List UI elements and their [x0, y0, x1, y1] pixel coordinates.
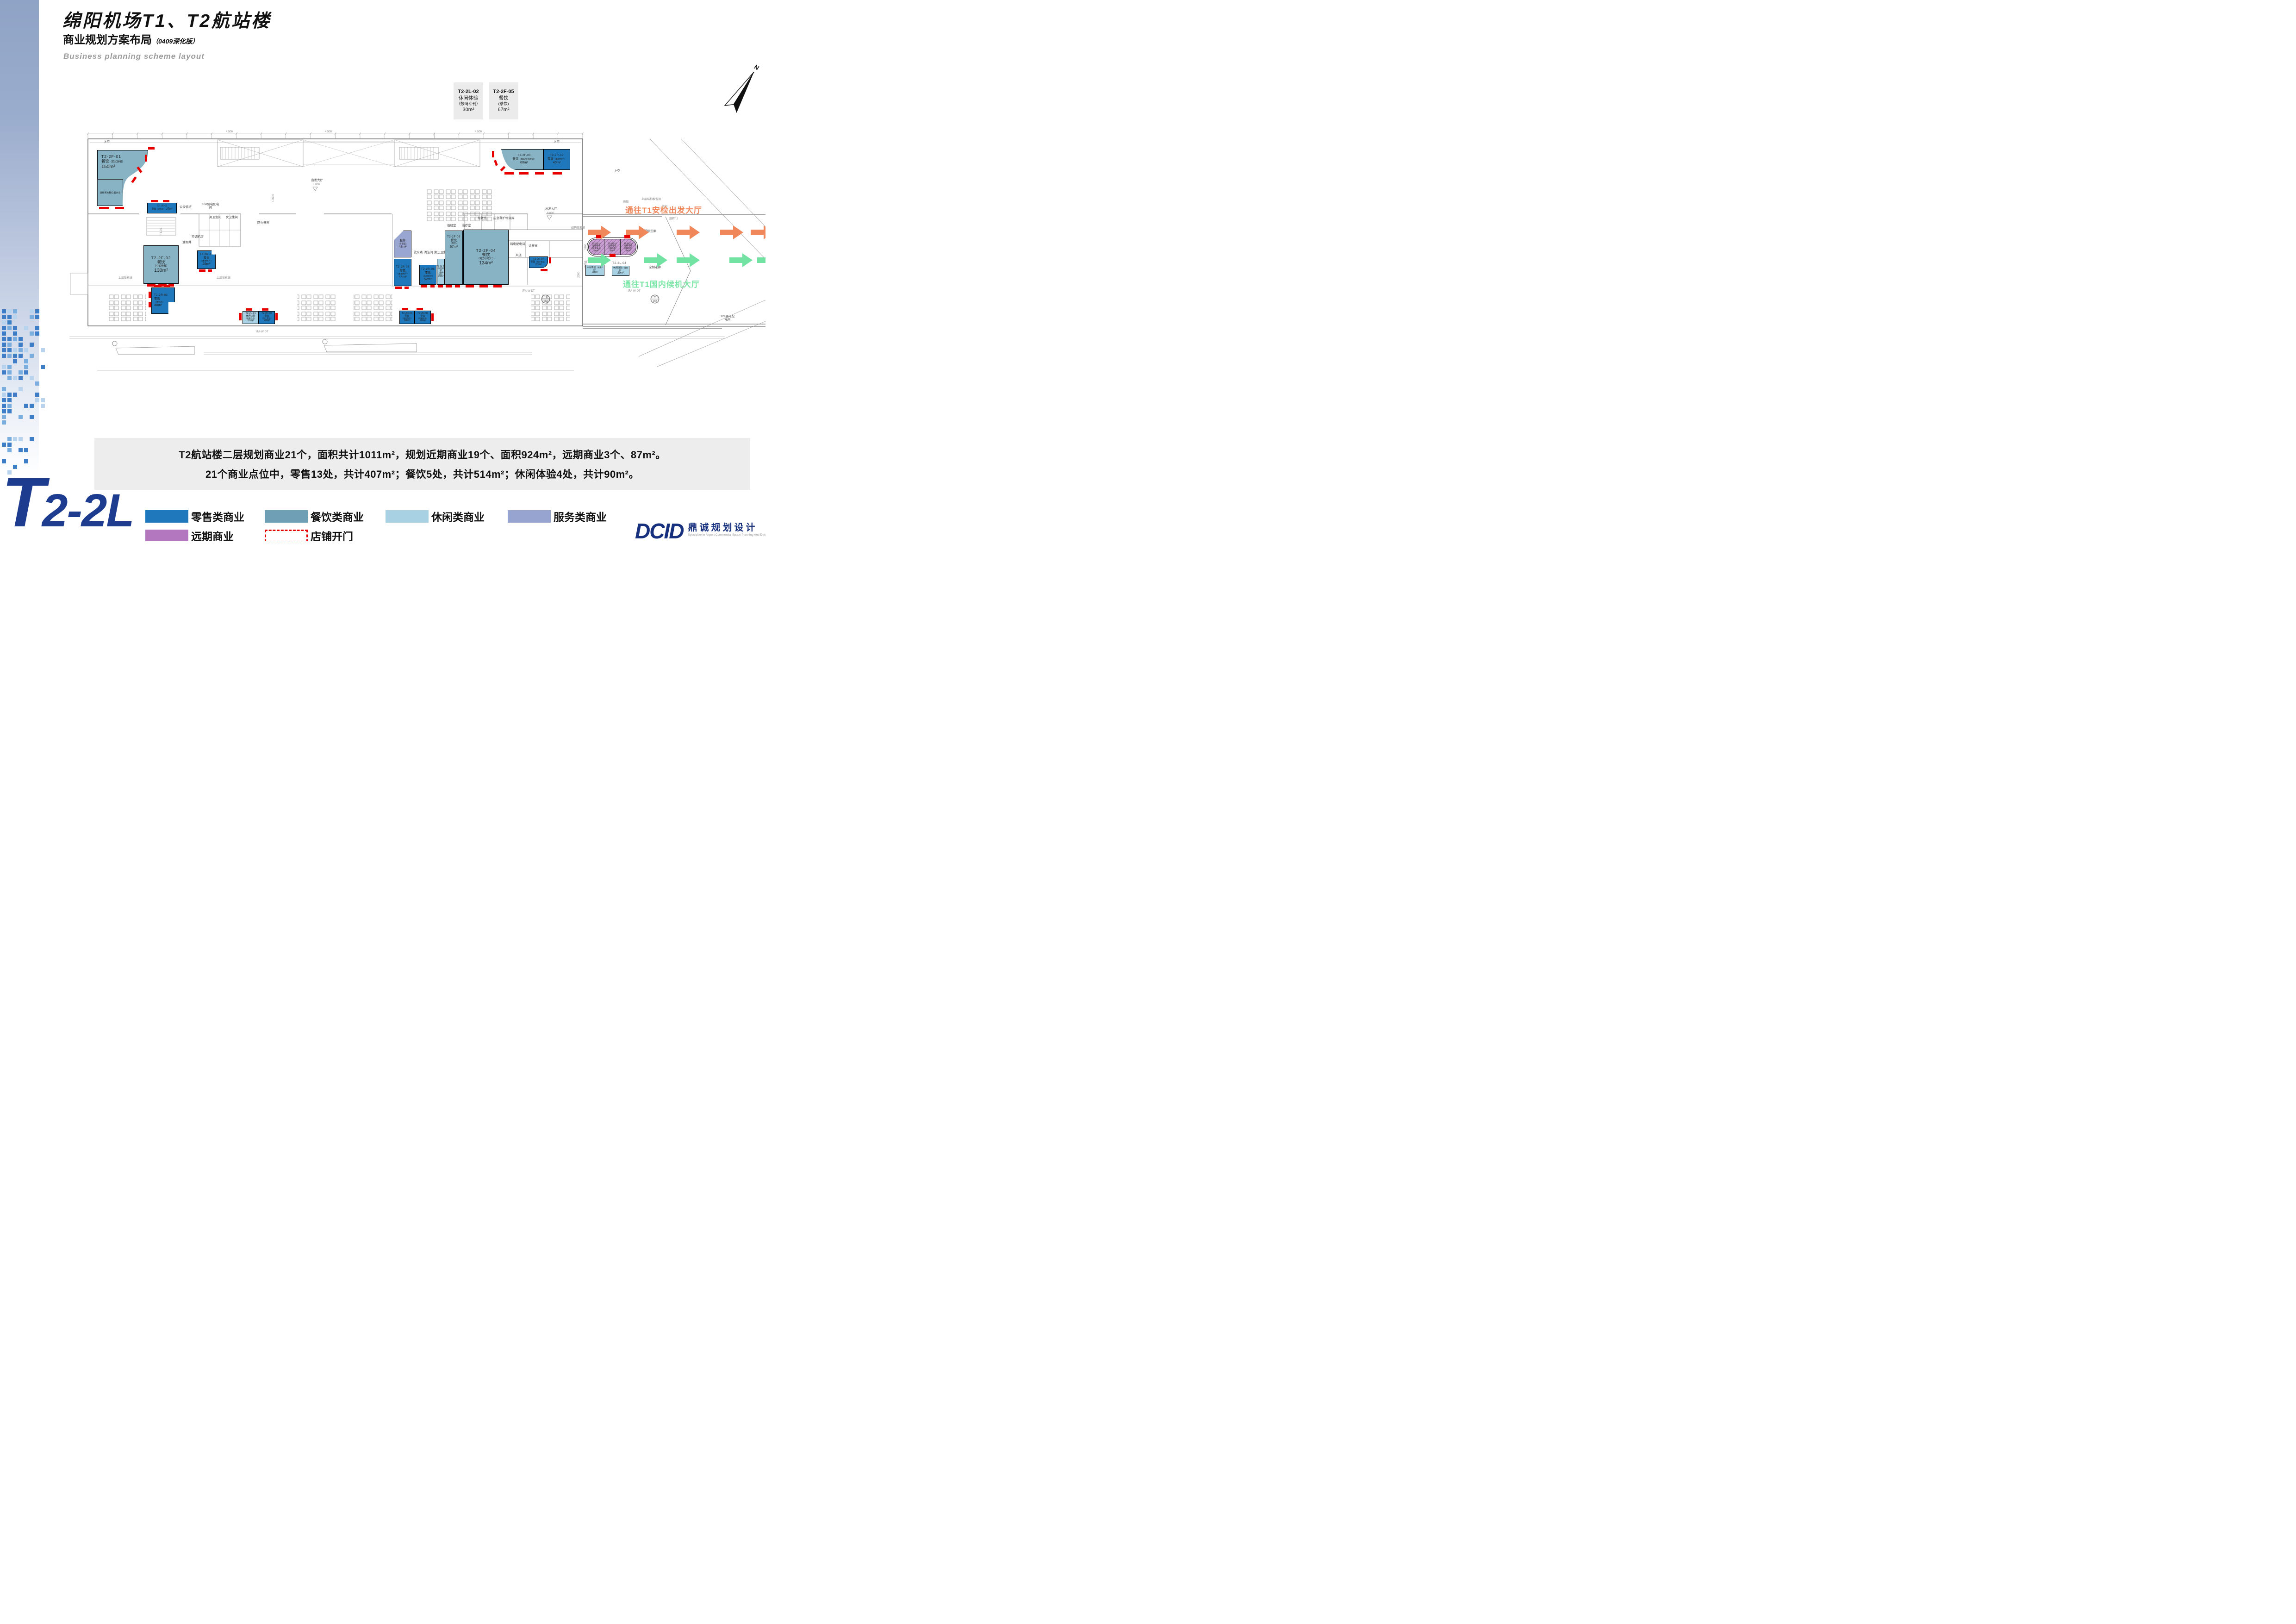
- shop-note: 操作间大致位置示意: [97, 179, 123, 207]
- subtitle-note: （0409深化版）: [152, 37, 199, 45]
- plan-label: 清洁间: [424, 251, 433, 254]
- shop-category: 服务: [400, 239, 406, 242]
- shop-area: 29m²: [202, 262, 210, 266]
- shop-area: 20m²: [404, 319, 411, 322]
- summary-line1: T2航站楼二层规划商业21个，面积共计1011m²，规划近期商业19个、面积92…: [179, 447, 666, 462]
- summary-band: T2航站楼二层规划商业21个，面积共计1011m²，规划近期商业19个、面积92…: [94, 438, 750, 490]
- callout-category: 休闲体验: [454, 95, 483, 102]
- plan-label: 治疗室: [462, 224, 471, 227]
- shop-T2-2L-04: T2-2L-04 休闲体验（睡眠舱） 20m²: [612, 266, 629, 276]
- shop-area: 48m²: [398, 245, 406, 249]
- shop-code: T2-2R-02: [550, 154, 563, 157]
- detail-bubble: 17 002: [541, 295, 550, 303]
- brand-cn: 鼎诚规划设计: [688, 522, 765, 533]
- legend-fnb: 餐饮类商业: [265, 508, 364, 524]
- callout-sub: (茶饮): [489, 101, 518, 106]
- plan-label: 公安值班: [180, 206, 192, 209]
- shop-T2-2F-04: T2-2F-04 餐饮 （地方小吃汇） 134m²: [463, 230, 509, 285]
- detail-bubble: 73 002: [651, 295, 659, 303]
- plan-label: 防火卷帘: [257, 221, 269, 225]
- shop-area: 29m²: [610, 250, 615, 252]
- shop-category: 餐饮（西式快餐）: [101, 159, 124, 164]
- plan-label: 上层投影线: [118, 277, 132, 280]
- shop-area: 20m²: [420, 319, 426, 322]
- plan-label: 饮水点: [414, 251, 423, 254]
- legend-retail: 零售类商业: [145, 508, 244, 524]
- shop-area: 20m²: [248, 319, 254, 322]
- shop-T2-2L-01: T2-2L-01 休闲体验 （按摩产品） 20m²: [243, 311, 259, 324]
- shop-code: T2-2F-05: [447, 236, 460, 239]
- shop-category: 餐饮: [157, 260, 165, 265]
- shop-category: 零售（便利店） 27m²: [151, 208, 172, 211]
- shop-area: 29m²: [626, 250, 630, 252]
- legend-swatch-retail: [145, 510, 188, 523]
- route-to-T1-waiting: 通往T1国内候机大厅: [623, 278, 700, 289]
- shop-code: T2-2L-04: [612, 262, 626, 265]
- shop-area: 130m²: [154, 268, 168, 273]
- plan-label: 值班室: [447, 224, 456, 227]
- shop-T2-2L-03: T2-2L-03 休闲体验（按摩产品） 20m²: [585, 265, 604, 276]
- shop-category: 休闲体验（睡眠舱）: [612, 267, 629, 272]
- page-code: T2-2L: [2, 462, 133, 541]
- plan-label: 上空: [554, 140, 560, 144]
- plan-label: 诊断室: [529, 244, 538, 248]
- shop-T2-2F-05: T2-2F-05 餐饮 （茶饮） 67m²: [445, 231, 463, 285]
- plan-label: 上层结构板留洞: [641, 198, 661, 201]
- plan-label: 女卫生间: [226, 216, 238, 219]
- plan-label: 6.000: [313, 183, 320, 187]
- brand-logo: DCID 鼎诚规划设计 Specialize In Airport Commer…: [635, 520, 765, 541]
- page: 绵阳机场T1、T2航站楼 商业规划方案布局（0409深化版） Business …: [0, 0, 765, 541]
- plan-label: 弱电配电间: [510, 243, 525, 246]
- shop-T2-2R-02: T2-2R-02 零售（本地特产） 40m²: [543, 149, 570, 170]
- plan-label: 风道: [516, 254, 522, 257]
- plan-label: 油烟井: [182, 241, 192, 244]
- plan-label: 空调机房: [192, 235, 204, 238]
- shop-area: 150m²: [101, 164, 115, 169]
- brand-dcid: DCID: [635, 520, 683, 541]
- callout-T2-2F-05: T2-2F-05 餐饮 (茶饮) 67m²: [489, 82, 518, 119]
- shop-code: T2-2F-03: [517, 154, 531, 157]
- shop-T2-2R-06: T2-2R-06 零售 （品牌茶叶） 52m²: [419, 265, 436, 285]
- plan-dim: 3800: [585, 244, 588, 250]
- shop-category: 餐饮: [482, 253, 490, 257]
- callout-area: 67m²: [489, 106, 518, 113]
- page-subtitle-en: Business planning scheme layout: [63, 52, 205, 61]
- callout-T2-2L-02: T2-2L-02 休闲体验 （数码专刊） 30m²: [454, 82, 483, 119]
- plan-label: FT-05: [160, 228, 163, 235]
- shop-area: 20m²: [592, 271, 598, 274]
- shop-area: 44m²: [398, 275, 406, 279]
- shop-T2-2L-02: T2-2L-02 休闲体验 （数码书刊） 30m²: [437, 259, 445, 285]
- legend-service: 服务类商业: [508, 508, 607, 524]
- shop-code: T2-2R-10: [199, 253, 213, 256]
- plan-label: 抢救室: [478, 217, 487, 220]
- callout-area: 30m²: [454, 106, 483, 113]
- plan-label: 上空: [614, 169, 620, 173]
- plan-label: 上空: [104, 140, 110, 144]
- legend-door: 店铺开门: [265, 528, 353, 541]
- future-retail-island: T2-2R-11 远期零售 （加工食品） 29m² T2-2R-12 远期零售 …: [588, 239, 636, 255]
- shop-area: 29m²: [594, 250, 599, 252]
- shop-area: 20m²: [617, 272, 624, 275]
- callout-code: T2-2L-02: [454, 88, 483, 95]
- page-code-T: T: [2, 463, 42, 541]
- summary-line2: 21个商业点位中，零售13处，共计407m²；餐饮5处，共计514m²；休闲体验…: [205, 466, 639, 481]
- shop-category: 休闲体验（按摩产品）: [586, 267, 604, 272]
- page-subtitle: 商业规划方案布局（0409深化版）: [63, 31, 199, 47]
- plan-label: 详A-W-DT: [255, 331, 268, 334]
- shop-area: 20m²: [264, 319, 270, 322]
- shop-category: 零售: [154, 297, 160, 300]
- shop-T2-2R-08: T2-2R-08 零售 （旅行用品） 20m²: [399, 311, 415, 324]
- plan-label: 结构变形缝: [571, 227, 585, 230]
- shop-area: 60m²: [520, 161, 528, 165]
- shop-area: 48m²: [154, 303, 162, 307]
- shop-T2-2R-05: T2-2R-05 零售 （本地特产） 44m²: [394, 259, 411, 286]
- plan-label: 上层投影线: [217, 277, 230, 280]
- plan-dim: 4,500: [475, 131, 482, 134]
- shop-category: 零售: [400, 269, 406, 272]
- shop-area: 52m²: [424, 277, 432, 281]
- legend-future: 远期商业: [145, 528, 234, 541]
- subtitle-cn: 商业规划方案布局: [63, 34, 152, 46]
- shop-area: 20m²: [535, 263, 542, 266]
- shop-T2-2R-12: T2-2R-12 远期零售 （便利店） 29m²: [604, 239, 620, 255]
- shop-area: 134m²: [479, 260, 493, 266]
- shop-T2-2R-04: T2-2R-04 零售 （加工食品） 20m²: [259, 311, 275, 324]
- legend-leisure: 休闲类商业: [386, 508, 485, 524]
- plan-label: 详A-W-DT: [522, 290, 535, 293]
- page-title: 绵阳机场T1、T2航站楼: [62, 6, 271, 32]
- plan-dim: 2000: [578, 272, 581, 278]
- plan-label: 12#强电配电间: [719, 315, 736, 321]
- legend-swatch-future: [145, 530, 188, 542]
- plan-label: 6.000: [547, 212, 554, 215]
- callout-code: T2-2F-05: [489, 88, 518, 95]
- callout-category: 餐饮: [489, 95, 518, 102]
- legend-swatch-door: [265, 530, 308, 542]
- shop-T2-2R-13: T2-2R-13 远期零售 （便利店） 29m²: [620, 239, 636, 255]
- plan-dim: 17600: [272, 194, 275, 202]
- shop-T2-2R-07: T2-2R-07 零售（加工食品） 20m²: [529, 256, 548, 268]
- plan-label: 详A-W-DT: [628, 290, 641, 293]
- plan-label: 男卫生间: [209, 216, 221, 219]
- shop-area: 40m²: [553, 161, 560, 165]
- plan-dim: 4,500: [226, 131, 233, 134]
- plan-label: 10#强电配电间: [201, 203, 220, 209]
- callout-sub: （数码专刊）: [454, 101, 483, 106]
- legend-swatch-service: [508, 510, 551, 523]
- legend-swatch-leisure: [386, 510, 429, 523]
- shop-T2-2F-02: T2-2F-02 餐饮 （中式快餐） 130m²: [143, 245, 179, 284]
- plan-label-landside: 陆侧走廊: [644, 230, 656, 233]
- plan-label: 旋转门: [669, 218, 678, 221]
- shop-code: T2-2L-03: [586, 261, 600, 264]
- plan-label: 出发大厅: [311, 179, 323, 182]
- page-code-rest: 2-2L: [42, 485, 134, 537]
- shop-area: 30m²: [438, 275, 444, 278]
- plan-label: 出发大厅: [545, 207, 557, 211]
- route-to-T1-security: 通往T1安检出发大厅: [625, 204, 702, 215]
- shop-category: 零售: [425, 271, 431, 275]
- plan-label: 应急救护物资库: [493, 217, 515, 220]
- plan-dim: 4,500: [325, 131, 332, 134]
- shop-T2-2R-01: T2-2R-01 零售（便利店） 27m²: [147, 203, 177, 213]
- legend-swatch-fnb: [265, 510, 308, 523]
- shop-area: 67m²: [450, 245, 458, 249]
- brand-en: Specialize In Airport Commercial Space P…: [688, 533, 765, 537]
- shop-T2-2R-11: T2-2R-11 远期零售 （加工食品） 29m²: [589, 239, 604, 255]
- shop-T2-2R-09: T2-2R-09 零售 （儿童玩具） 20m²: [415, 311, 431, 324]
- plan-label-airside: 空侧走廊: [649, 266, 661, 269]
